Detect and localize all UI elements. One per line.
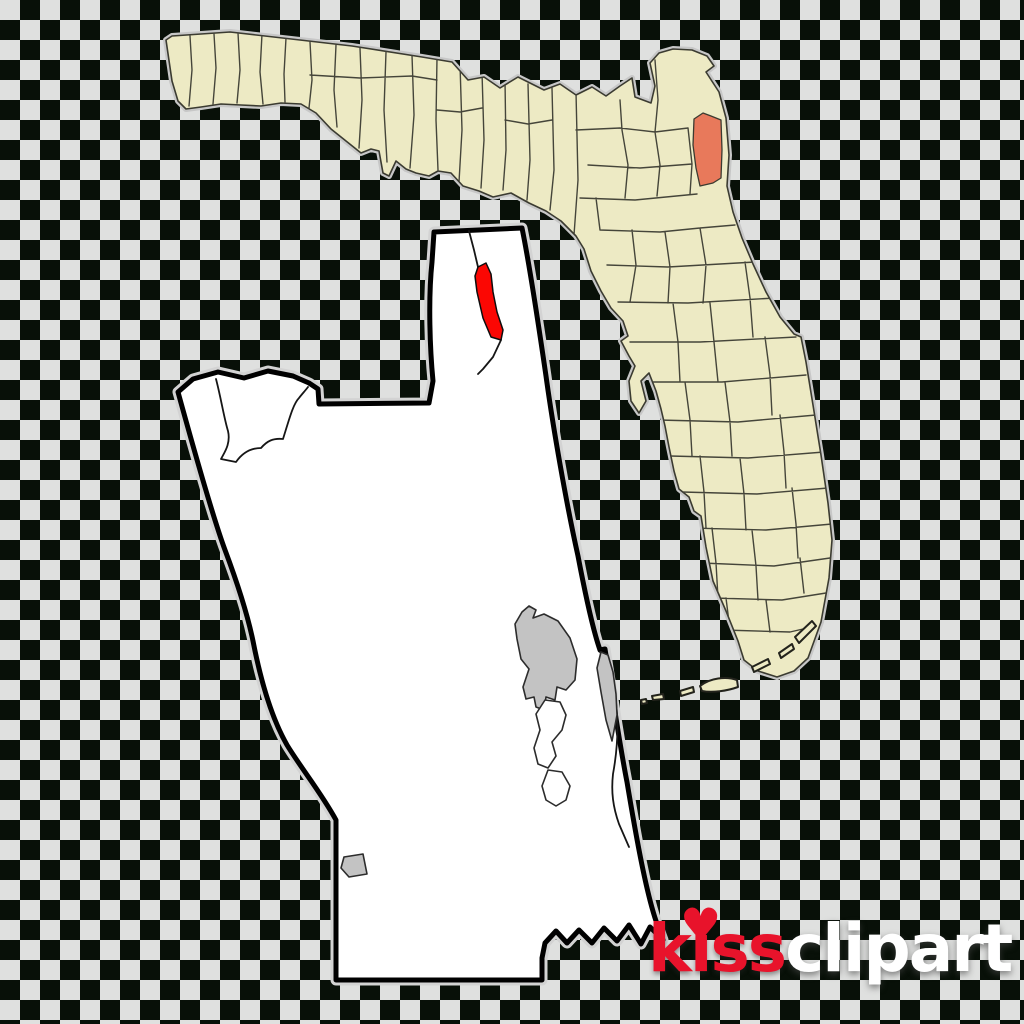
watermark: kiss ♥ clipart	[648, 916, 1011, 982]
county-detail-map	[178, 228, 663, 980]
highlighted-county	[693, 113, 722, 186]
watermark-clipart-text: clipart	[785, 916, 1011, 982]
urban-area-small	[341, 854, 367, 877]
florida-locator-map	[0, 0, 1024, 1024]
watermark-kiss-text: kiss ♥	[648, 916, 785, 982]
transparent-checkerboard-canvas: kiss ♥ clipart	[0, 0, 1024, 1024]
county-outline	[178, 228, 663, 980]
heart-icon: ♥	[680, 902, 721, 948]
